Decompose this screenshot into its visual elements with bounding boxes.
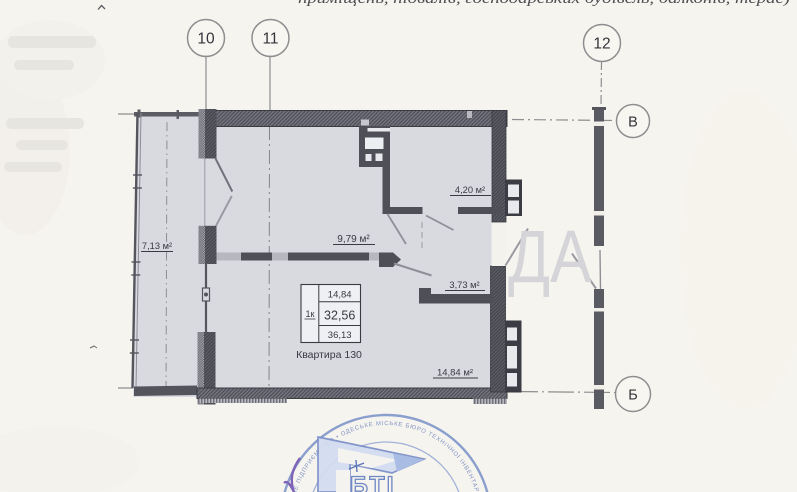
svg-text:36,13: 36,13 [328,330,352,341]
svg-text:приміщень, підвалів, господарс: приміщень, підвалів, господарських будів… [298,0,790,7]
svg-text:14,84 м²: 14,84 м² [437,368,473,379]
svg-text:Квартира 130: Квартира 130 [296,349,362,361]
svg-text:11: 11 [262,31,278,48]
svg-text:В: В [628,115,638,131]
svg-text:12: 12 [593,36,610,53]
svg-text:4,20 м²: 4,20 м² [455,185,485,195]
svg-text:32,56: 32,56 [324,309,355,323]
svg-text:7,13 м²: 7,13 м² [142,241,172,251]
svg-text:10: 10 [197,31,215,48]
svg-text:Б: Б [628,388,638,404]
svg-text:14,84: 14,84 [328,290,352,301]
svg-text:БТІ: БТІ [350,472,396,492]
svg-text:9,79 м²: 9,79 м² [337,234,370,245]
svg-text:ДА: ДА [508,216,592,298]
svg-text:3,73 м²: 3,73 м² [449,280,479,290]
svg-text:1к: 1к [306,309,315,319]
